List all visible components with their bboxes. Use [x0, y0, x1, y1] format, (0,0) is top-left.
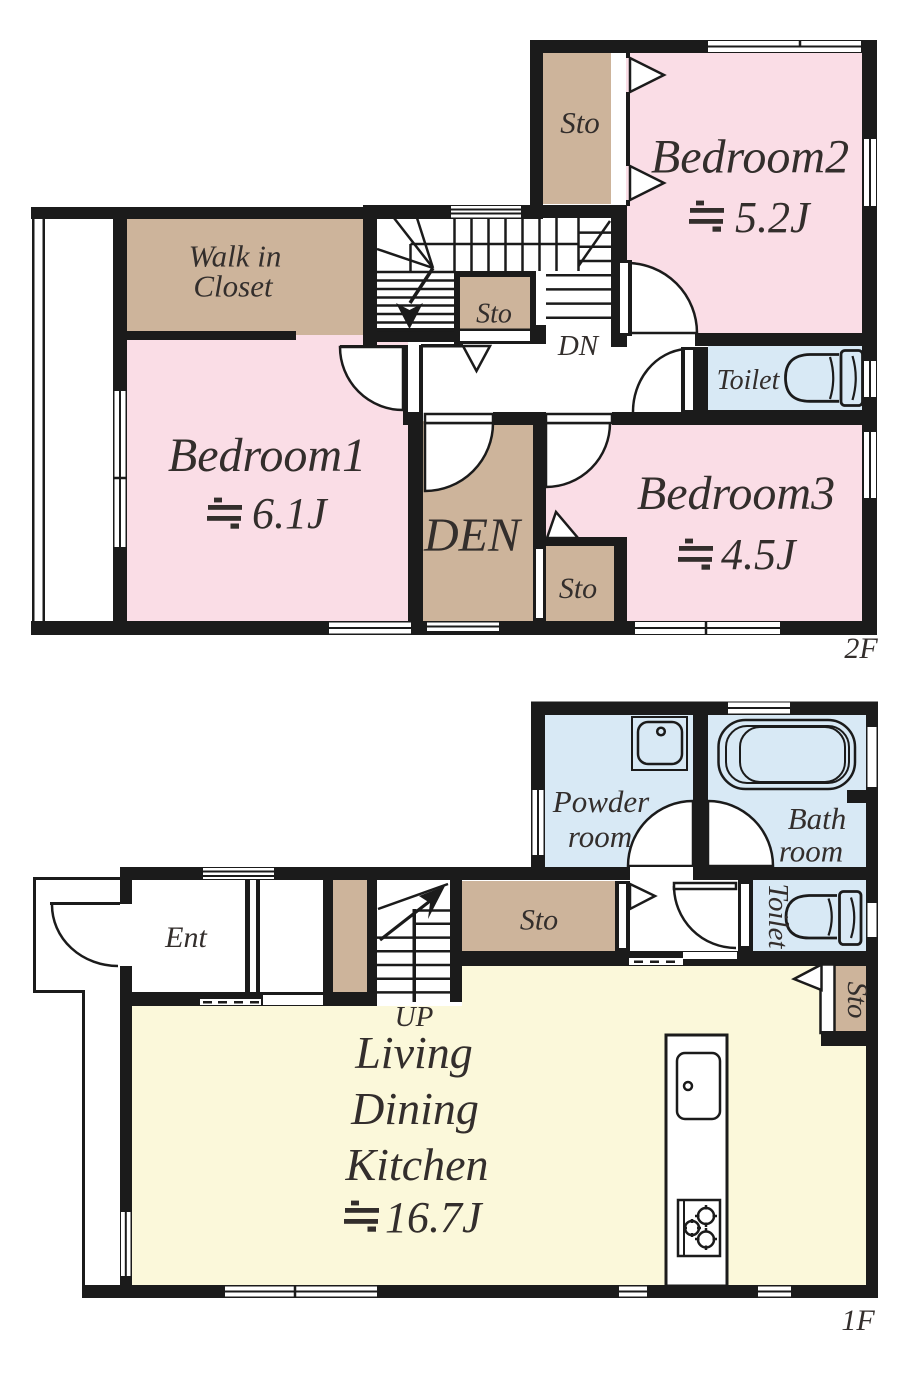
svg-text:Dining: Dining	[350, 1083, 479, 1134]
svg-text:Sto: Sto	[476, 299, 512, 330]
svg-text:Sto: Sto	[841, 981, 873, 1018]
svg-text:6.1J: 6.1J	[252, 489, 329, 538]
svg-text:Kitchen: Kitchen	[344, 1139, 488, 1190]
svg-text:Closet: Closet	[193, 269, 274, 304]
svg-text:5.2J: 5.2J	[735, 193, 812, 242]
svg-text:Toilet: Toilet	[762, 883, 794, 949]
svg-text:DEN: DEN	[423, 509, 523, 562]
svg-text:4.5J: 4.5J	[721, 530, 798, 579]
svg-text:Toilet: Toilet	[717, 365, 781, 396]
svg-text:1F: 1F	[841, 1304, 875, 1337]
svg-text:Bath: Bath	[788, 801, 847, 836]
svg-text:Sto: Sto	[559, 572, 597, 605]
svg-text:room: room	[779, 834, 843, 869]
svg-text:16.7J: 16.7J	[385, 1193, 484, 1242]
svg-text:Bedroom1: Bedroom1	[168, 429, 366, 482]
svg-text:Ent: Ent	[164, 921, 207, 954]
svg-text:DN: DN	[557, 330, 600, 362]
svg-text:Bedroom3: Bedroom3	[637, 467, 835, 520]
svg-text:Living: Living	[354, 1027, 473, 1078]
svg-text:2F: 2F	[844, 632, 878, 665]
svg-text:Bedroom2: Bedroom2	[651, 131, 849, 184]
svg-text:Sto: Sto	[560, 105, 600, 140]
svg-text:room: room	[568, 819, 632, 854]
svg-text:Sto: Sto	[520, 904, 558, 937]
svg-text:Powder: Powder	[552, 784, 650, 819]
